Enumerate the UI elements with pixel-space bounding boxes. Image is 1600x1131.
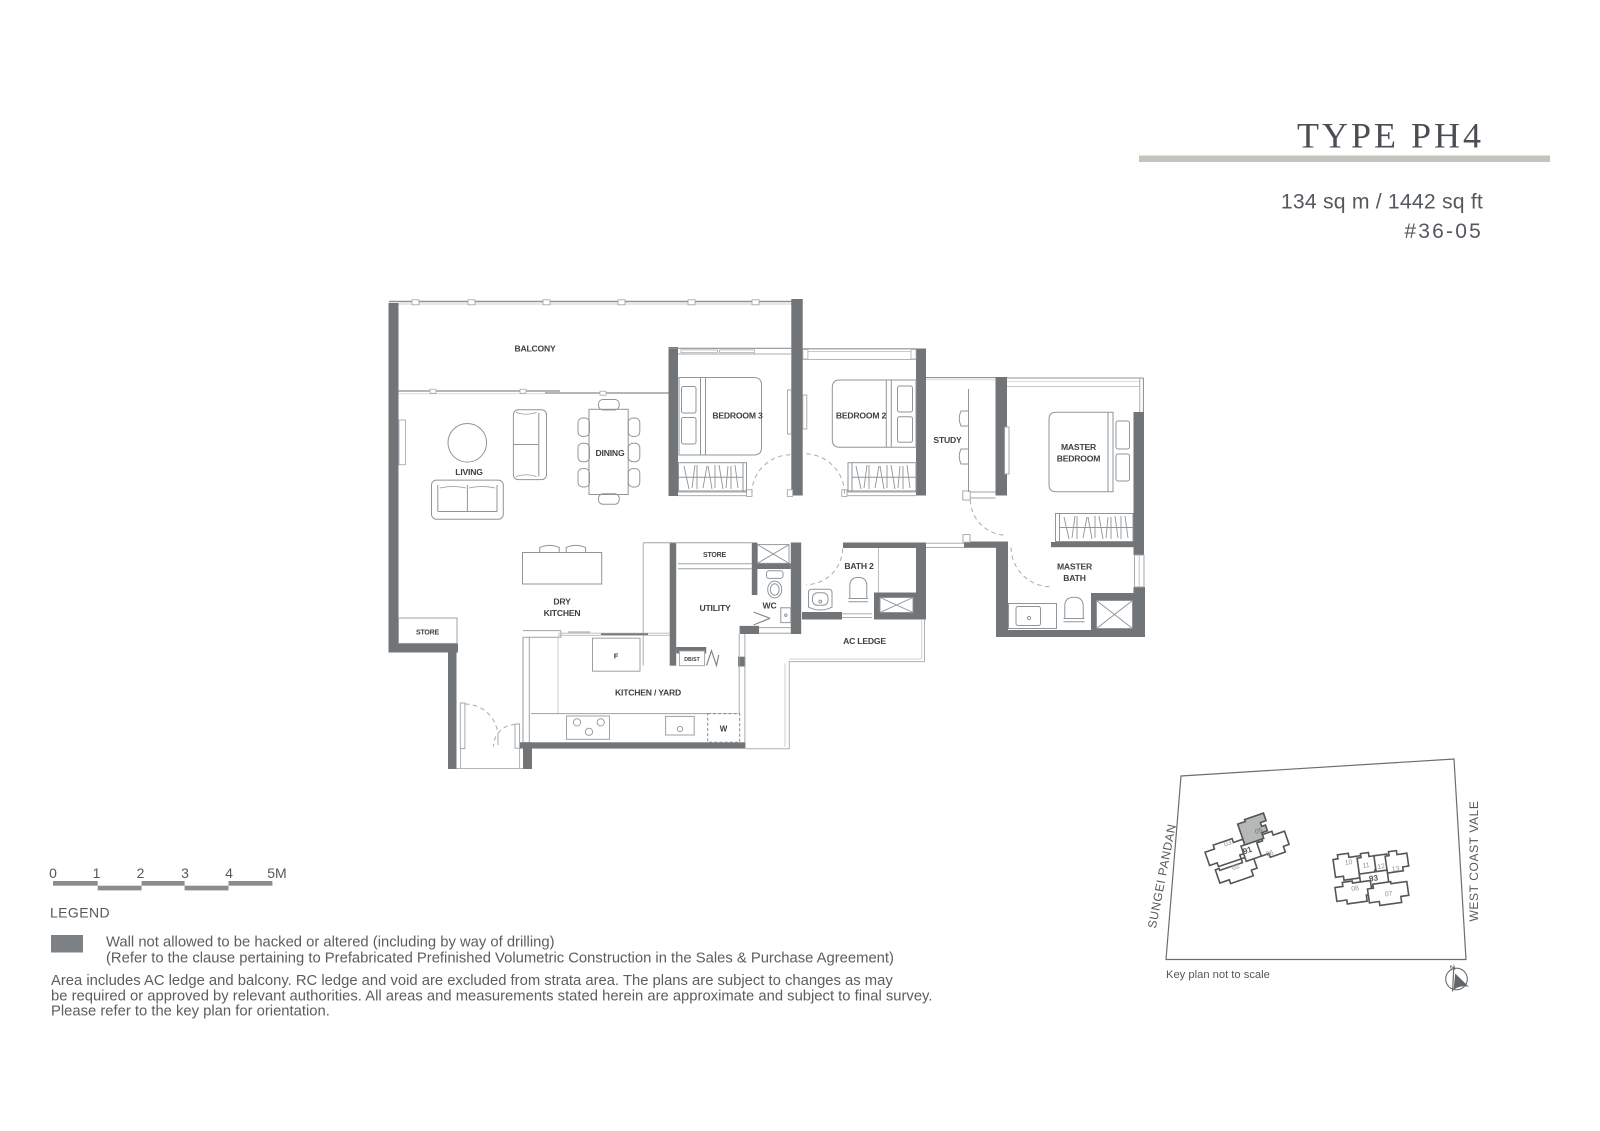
svg-text:BEDROOM 2: BEDROOM 2	[836, 411, 887, 421]
svg-text:5M: 5M	[267, 865, 286, 881]
svg-text:BEDROOM: BEDROOM	[1057, 454, 1101, 464]
svg-text:93: 93	[1368, 873, 1379, 883]
svg-text:STORE: STORE	[703, 552, 727, 559]
svg-text:KITCHEN: KITCHEN	[544, 608, 581, 618]
svg-text:3: 3	[181, 865, 189, 881]
svg-text:F: F	[614, 652, 619, 661]
svg-text:BATH 2: BATH 2	[844, 561, 874, 571]
svg-text:MASTER: MASTER	[1057, 562, 1093, 572]
svg-text:LIVING: LIVING	[455, 467, 483, 477]
svg-text:UTILITY: UTILITY	[699, 603, 731, 613]
svg-text:WC: WC	[763, 601, 777, 611]
svg-text:DB/ST: DB/ST	[684, 657, 700, 663]
svg-text:LEGEND: LEGEND	[50, 905, 110, 921]
svg-text:Please refer to the key plan f: Please refer to the key plan for orienta…	[51, 1004, 330, 1020]
svg-text:KITCHEN / YARD: KITCHEN / YARD	[615, 688, 681, 698]
svg-text:#36-05: #36-05	[1404, 220, 1483, 243]
svg-text:4: 4	[225, 865, 233, 881]
svg-text:10: 10	[1344, 859, 1353, 867]
svg-text:Wall not allowed to be hacked: Wall not allowed to be hacked or altered…	[106, 935, 555, 951]
svg-text:STORE: STORE	[416, 630, 440, 637]
svg-text:AC LEDGE: AC LEDGE	[843, 636, 886, 646]
svg-text:Area includes AC ledge and bal: Area includes AC ledge and balcony. RC l…	[51, 973, 893, 989]
svg-text:BALCONY: BALCONY	[514, 344, 556, 354]
svg-text:1: 1	[93, 865, 101, 881]
svg-text:MASTER: MASTER	[1061, 442, 1097, 452]
svg-text:134 sq m / 1442 sq ft: 134 sq m / 1442 sq ft	[1281, 191, 1483, 214]
svg-text:DRY: DRY	[553, 597, 571, 607]
svg-text:DINING: DINING	[596, 448, 625, 458]
svg-text:13: 13	[1391, 865, 1400, 873]
svg-text:11: 11	[1362, 862, 1370, 870]
svg-text:0: 0	[49, 865, 57, 881]
svg-text:BEDROOM 3: BEDROOM 3	[712, 411, 763, 421]
svg-text:W: W	[720, 725, 728, 734]
svg-text:(Refer to the clause pertainin: (Refer to the clause pertaining to Prefa…	[106, 951, 894, 967]
svg-text:2: 2	[137, 865, 145, 881]
svg-text:TYPE PH4: TYPE PH4	[1297, 116, 1484, 156]
svg-text:12: 12	[1377, 863, 1386, 871]
svg-text:WEST COAST VALE: WEST COAST VALE	[1467, 800, 1481, 921]
svg-text:Key plan not to scale: Key plan not to scale	[1166, 969, 1270, 981]
svg-text:08: 08	[1351, 885, 1360, 893]
svg-text:be required or approved by rel: be required or approved by relevant auth…	[51, 989, 932, 1005]
svg-text:07: 07	[1384, 890, 1393, 898]
svg-text:BATH: BATH	[1063, 573, 1085, 583]
svg-text:STUDY: STUDY	[933, 435, 962, 445]
